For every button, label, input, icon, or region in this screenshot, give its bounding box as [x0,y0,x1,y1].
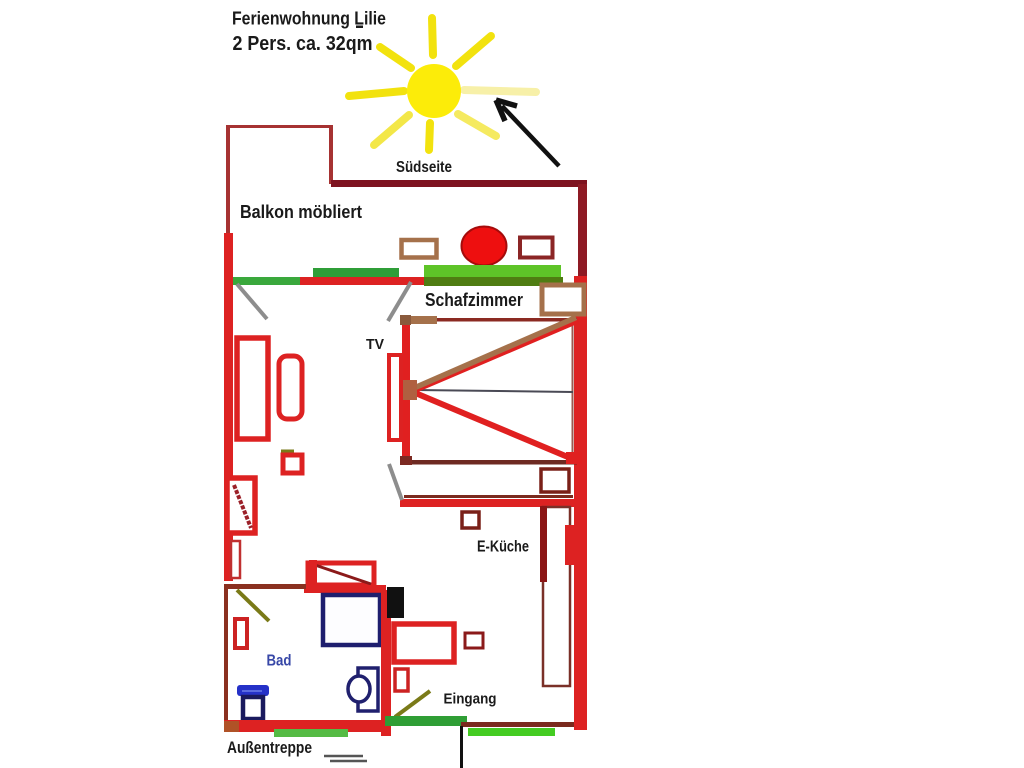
svg-text:TV: TV [366,336,384,353]
svg-text:Balkon möbliert: Balkon möbliert [240,201,362,222]
svg-text:Südseite: Südseite [396,159,452,176]
svg-text:E-Küche: E-Küche [477,539,529,556]
svg-text:Außentreppe: Außentreppe [227,739,312,757]
svg-text:Bad: Bad [267,653,292,670]
svg-text:Eingang: Eingang [444,691,497,708]
svg-text:Ferienwohnung Lilie: Ferienwohnung Lilie [232,8,386,29]
svg-text:Schafzimmer: Schafzimmer [425,290,523,310]
svg-text:2 Pers. ca. 32qm: 2 Pers. ca. 32qm [233,33,373,55]
